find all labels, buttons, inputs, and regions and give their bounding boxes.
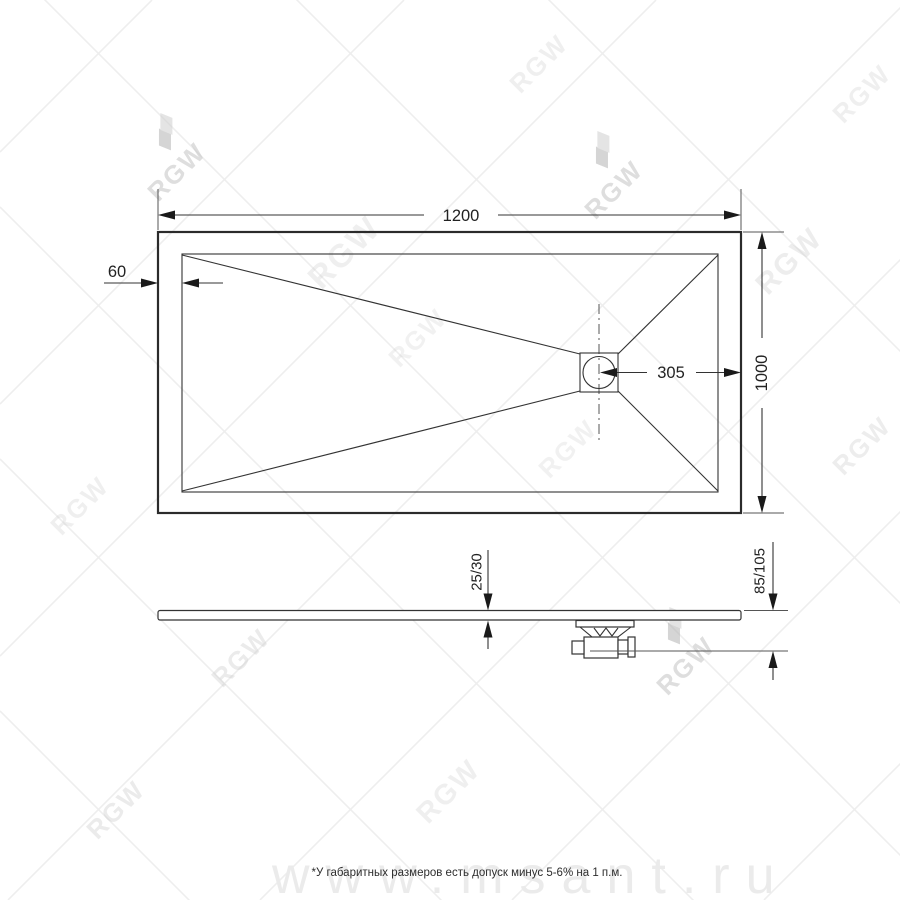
rgw-watermark: RGW xyxy=(410,753,487,830)
arrow-down-icon xyxy=(484,594,493,611)
arrow-down-icon xyxy=(758,496,767,513)
rgw-watermark-text: RGW xyxy=(141,136,211,206)
arrow-down-icon xyxy=(769,594,778,611)
drain-trap-body xyxy=(584,637,618,658)
footnote-text: *У габаритных размеров есть допуск минус… xyxy=(312,867,623,879)
dim-edge-offset: 60 xyxy=(104,263,223,288)
arrow-up-icon xyxy=(758,232,767,249)
svg-text:RGW: RGW xyxy=(80,774,150,844)
dim-thickness-label: 25/30 xyxy=(469,553,486,591)
lattice-line xyxy=(0,0,404,404)
watermark-lattice xyxy=(0,0,900,900)
arrow-right-icon xyxy=(724,368,741,377)
arrow-left-icon xyxy=(600,368,617,377)
rgw-watermark: RGW xyxy=(80,774,150,844)
rgw-watermark: RGW xyxy=(382,302,452,372)
svg-text:RGW: RGW xyxy=(410,753,487,830)
rgw-watermark: RGW xyxy=(205,622,275,692)
lattice-line xyxy=(0,0,900,900)
drain-trap-flange xyxy=(576,621,634,628)
lattice-line xyxy=(0,0,152,152)
slope-line-top-right xyxy=(618,255,718,354)
shower-tray-drawing: RGW RGW RGW RGW RGW RGW RGW xyxy=(0,0,900,900)
arrow-up-icon xyxy=(769,651,778,668)
svg-text:RGW: RGW xyxy=(382,302,452,372)
tray-profile xyxy=(158,611,741,621)
drain-trap-funnel-ribs xyxy=(594,628,618,636)
drain-trap-inlet-tab xyxy=(572,641,584,654)
svg-text:RGW: RGW xyxy=(532,413,602,483)
dim-width-label: 1200 xyxy=(443,207,480,225)
svg-text:RGW: RGW xyxy=(503,28,573,98)
drain-trap-outlet xyxy=(618,640,628,654)
rgw-watermark: RGW xyxy=(115,109,212,206)
dim-drain-offset: 305 xyxy=(600,364,741,382)
drain-trap xyxy=(572,621,635,659)
dim-height-label: 85/105 xyxy=(752,548,769,594)
dim-drain-offset-label: 305 xyxy=(657,364,685,382)
dim-edge-offset-label: 60 xyxy=(108,263,126,281)
dim-width: 1200 xyxy=(158,189,741,230)
tray-outer-edge xyxy=(158,232,741,513)
lattice-line xyxy=(0,0,900,900)
rgw-watermark: RGW xyxy=(749,221,829,301)
rgw-watermark: RGW xyxy=(826,58,896,128)
rgw-watermark: RGW xyxy=(44,470,114,540)
arrow-left-icon xyxy=(182,279,199,288)
drain-trap-outlet-cap xyxy=(628,637,635,657)
svg-text:RGW: RGW xyxy=(826,410,896,480)
svg-text:RGW: RGW xyxy=(826,58,896,128)
rgw-watermark: RGW xyxy=(503,28,573,98)
lattice-line xyxy=(764,0,900,900)
dim-thickness: 25/30 xyxy=(469,550,493,649)
arrow-left-icon xyxy=(158,211,175,220)
svg-text:RGW: RGW xyxy=(301,209,388,296)
rgw-watermark: RGW xyxy=(826,410,896,480)
arrow-right-icon xyxy=(141,279,158,288)
rgw-watermark: RGW xyxy=(552,127,649,224)
drawing-svg: RGW RGW RGW RGW RGW RGW RGW xyxy=(0,0,900,900)
rgw-watermark: RGW xyxy=(301,209,388,296)
slope-line-top-left xyxy=(182,255,580,354)
svg-text:RGW: RGW xyxy=(205,622,275,692)
rgw-watermark: RGW xyxy=(532,413,602,483)
svg-text:RGW: RGW xyxy=(749,221,829,301)
arrow-up-icon xyxy=(484,621,493,638)
svg-text:RGW: RGW xyxy=(578,154,648,224)
svg-text:RGW: RGW xyxy=(44,470,114,540)
arrow-right-icon xyxy=(724,211,741,220)
dim-depth-label: 1000 xyxy=(753,355,771,392)
lattice-line xyxy=(0,0,656,656)
lattice-line xyxy=(0,0,900,900)
